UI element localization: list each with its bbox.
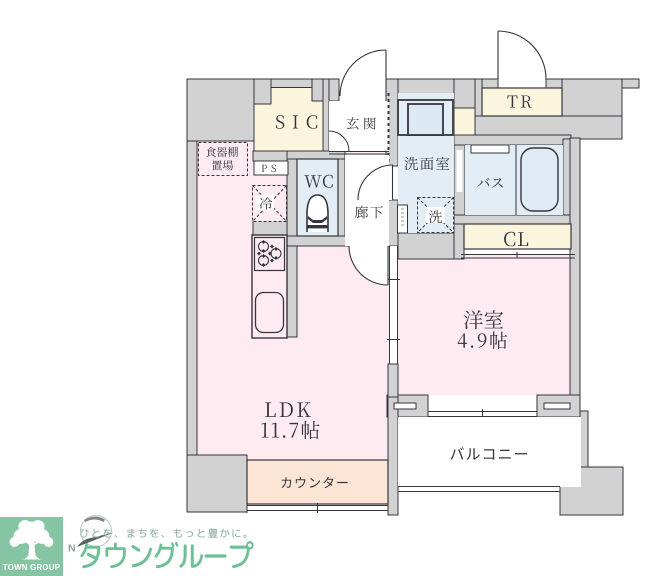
svg-text:N: N (68, 543, 76, 555)
svg-text:TOWN GROUP: TOWN GROUP (3, 563, 60, 572)
